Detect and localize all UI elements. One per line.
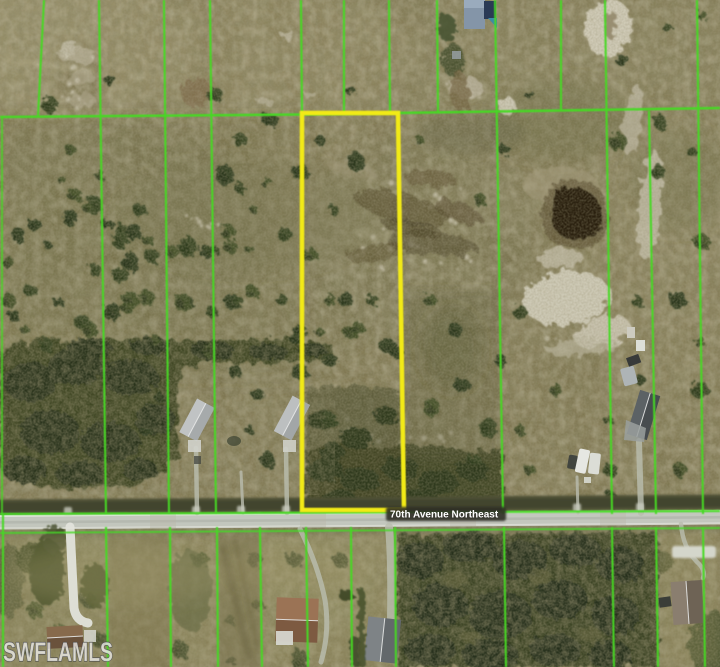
svg-text:SWFLAMLS: SWFLAMLS xyxy=(3,637,113,667)
svg-text:70th Avenue Northeast: 70th Avenue Northeast xyxy=(390,510,499,521)
